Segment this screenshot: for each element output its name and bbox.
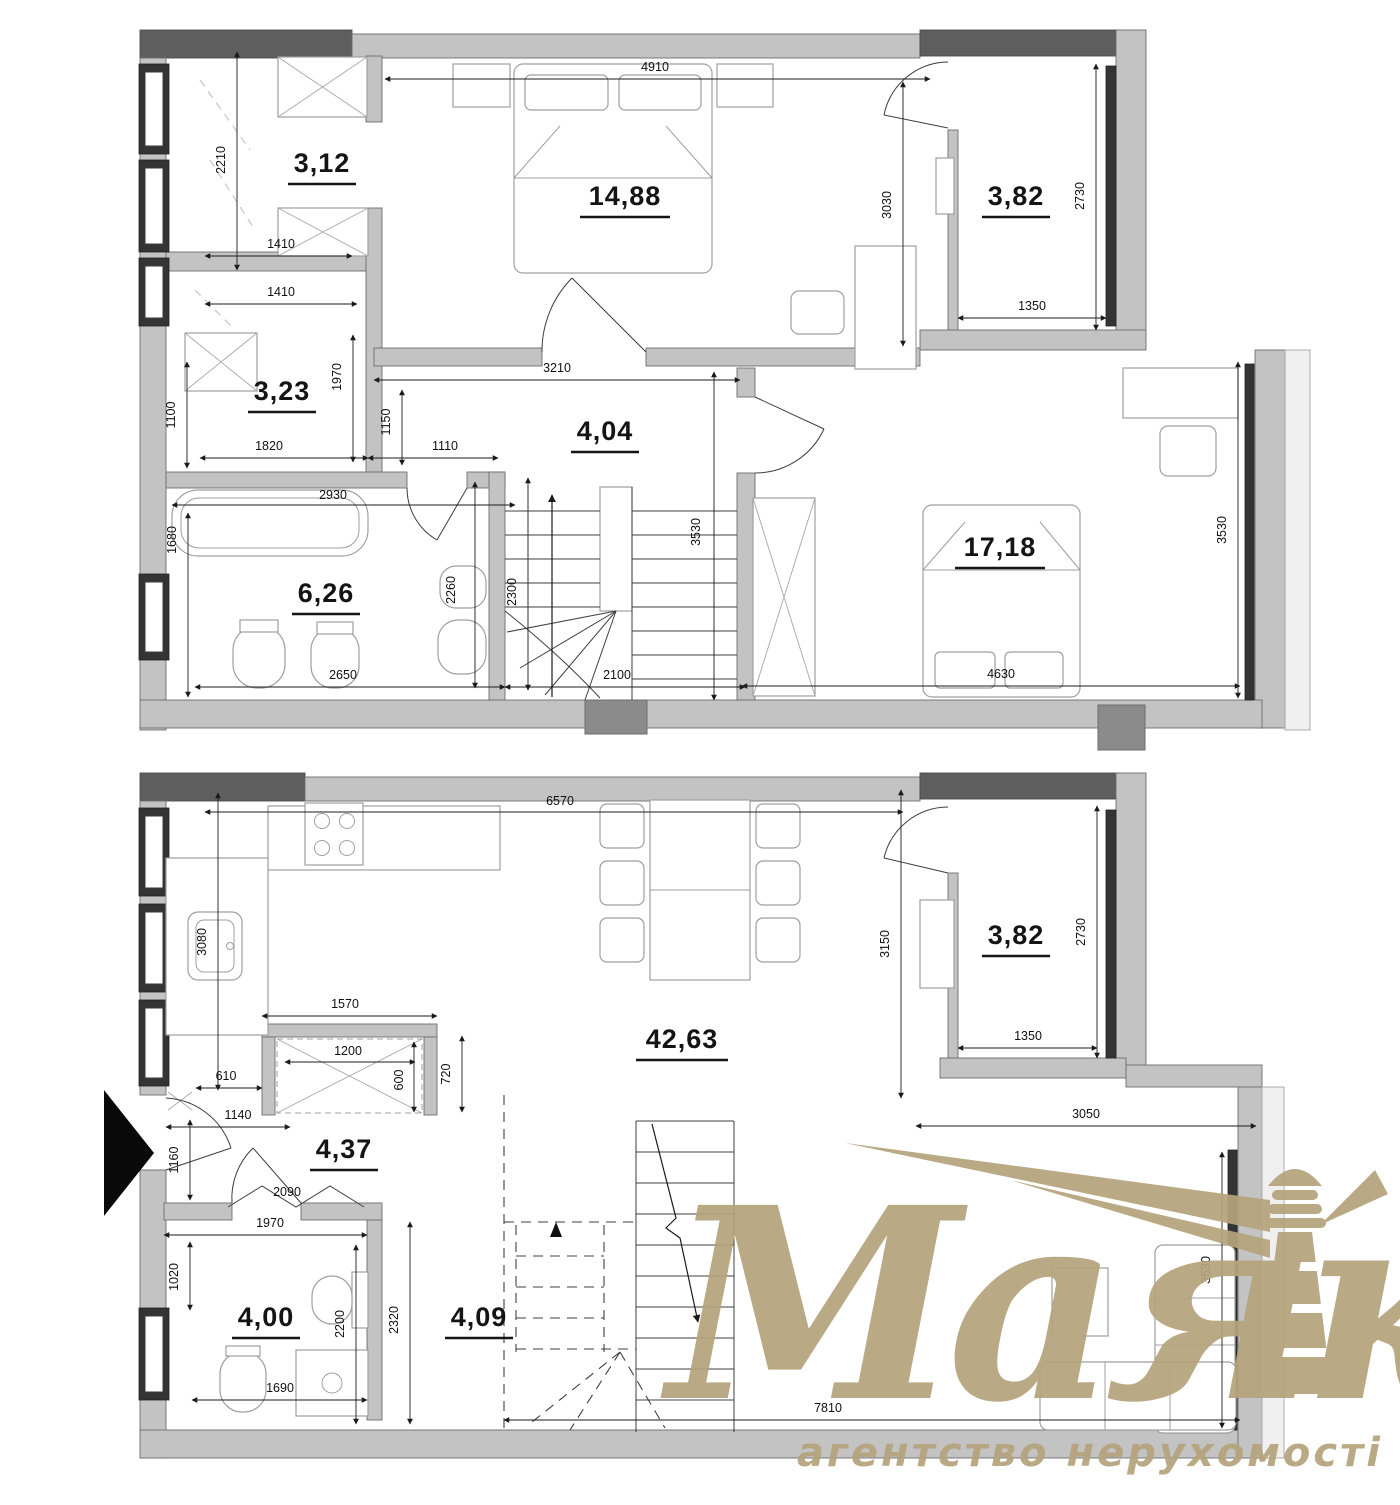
dim-label: 1680 <box>165 526 179 554</box>
dim-label: 1350 <box>1018 299 1046 313</box>
floorplan-page: 4910 2210 1410 1410 3030 2730 1350 1100 … <box>0 0 1400 1505</box>
room-area-label: 3,82 <box>988 181 1045 211</box>
desk-icon <box>1123 368 1238 476</box>
dim-label: 1140 <box>225 1108 252 1122</box>
shower-icon <box>296 1350 368 1416</box>
bed-icon <box>453 64 773 273</box>
dim-label: 2730 <box>1074 918 1088 946</box>
dim-label: 1970 <box>256 1216 284 1230</box>
room-area-label: 6,26 <box>298 578 355 608</box>
dim-label: 610 <box>216 1069 237 1083</box>
dim-label: 1020 <box>167 1263 181 1291</box>
radiator-icon <box>920 900 954 988</box>
dim-label: 3210 <box>543 361 571 375</box>
dim-label: 1820 <box>255 439 283 453</box>
room-area-label: 17,18 <box>964 532 1037 562</box>
dim-label: 1110 <box>432 439 458 453</box>
watermark-wordmark: Маяк <box>660 1150 1400 1461</box>
stairs-up-arrowhead <box>550 1222 562 1237</box>
dim-label: 3050 <box>1072 1107 1100 1121</box>
dim-label: 3530 <box>689 518 703 546</box>
dim-label: 1150 <box>379 409 393 436</box>
room-area-label: 42,63 <box>646 1024 719 1054</box>
radiator-icon <box>936 158 954 214</box>
room-area-label: 4,00 <box>238 1302 295 1332</box>
room-area-label: 4,37 <box>316 1134 373 1164</box>
dining-table-icon <box>600 800 800 980</box>
dim-label: 4630 <box>987 667 1015 681</box>
dim-label: 1410 <box>267 285 295 299</box>
dim-label: 2260 <box>444 576 458 604</box>
dim-label: 2090 <box>273 1185 301 1199</box>
dim-label: 2100 <box>603 668 631 682</box>
watermark: Маяк агентство нерухомості <box>660 1143 1400 1476</box>
dim-label: 6570 <box>546 794 574 808</box>
dim-label: 3080 <box>195 928 209 956</box>
dim-label: 3150 <box>878 930 892 958</box>
dim-label: 1570 <box>331 997 359 1011</box>
dim-label: 1970 <box>330 363 344 391</box>
dim-label: 3530 <box>1215 516 1229 544</box>
room-area-label: 3,82 <box>988 920 1045 950</box>
upper-floor-plan: 4910 2210 1410 1410 3030 2730 1350 1100 … <box>139 30 1310 750</box>
room-area-label: 4,04 <box>577 416 634 446</box>
dim-label: 2300 <box>505 578 519 606</box>
dim-label: 1410 <box>267 237 295 251</box>
dim-label: 2930 <box>319 488 347 502</box>
dim-label: 2210 <box>214 146 228 174</box>
dim-label: 2650 <box>329 668 357 682</box>
room-area-label: 3,12 <box>294 148 351 178</box>
dim-label: 4910 <box>641 60 669 74</box>
room-area-label: 3,23 <box>254 376 311 406</box>
dim-label: 1350 <box>1014 1029 1042 1043</box>
dim-label: 600 <box>392 1070 406 1091</box>
dim-label: 1690 <box>266 1381 294 1395</box>
dim-label: 2320 <box>387 1306 401 1334</box>
dim-label: 1160 <box>167 1147 181 1174</box>
dim-label: 720 <box>439 1064 453 1085</box>
dim-label: 2730 <box>1073 182 1087 210</box>
dim-label: 2200 <box>333 1310 347 1338</box>
watermark-tagline: агентство нерухомості <box>797 1430 1383 1476</box>
dim-label: 1200 <box>334 1044 362 1058</box>
room-area-label: 4,09 <box>451 1302 508 1332</box>
floorplan-drawing: 4910 2210 1410 1410 3030 2730 1350 1100 … <box>0 0 1400 1505</box>
dim-label: 3030 <box>880 191 894 219</box>
room-area-label: 14,88 <box>589 181 662 211</box>
dim-label: 1100 <box>164 402 178 429</box>
